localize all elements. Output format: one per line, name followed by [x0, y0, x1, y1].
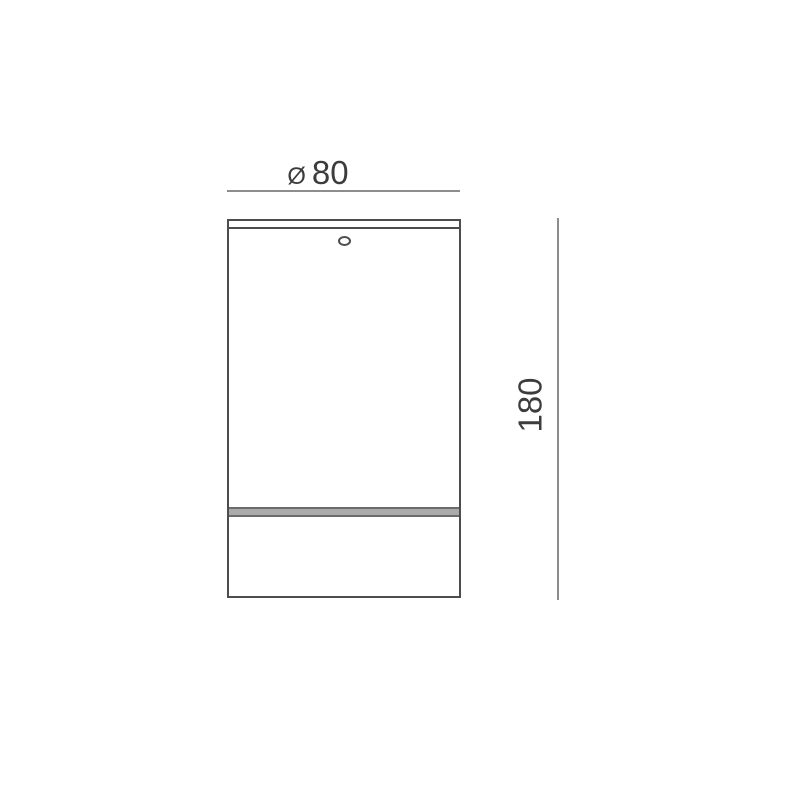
height-dimension-label: 180	[514, 377, 547, 432]
dimension-drawing: Ø80 180	[0, 0, 800, 800]
diameter-dimension-line	[227, 190, 460, 192]
height-dimension-line	[557, 218, 559, 600]
screw-hole-icon	[338, 236, 351, 246]
fixture-joint-band	[229, 507, 459, 517]
diameter-value: 80	[312, 154, 349, 191]
fixture-cap-seam-line	[229, 227, 459, 229]
fixture-body-outline	[227, 219, 461, 598]
diameter-dimension-label: Ø80	[287, 156, 348, 189]
diameter-symbol-icon: Ø	[287, 163, 305, 190]
